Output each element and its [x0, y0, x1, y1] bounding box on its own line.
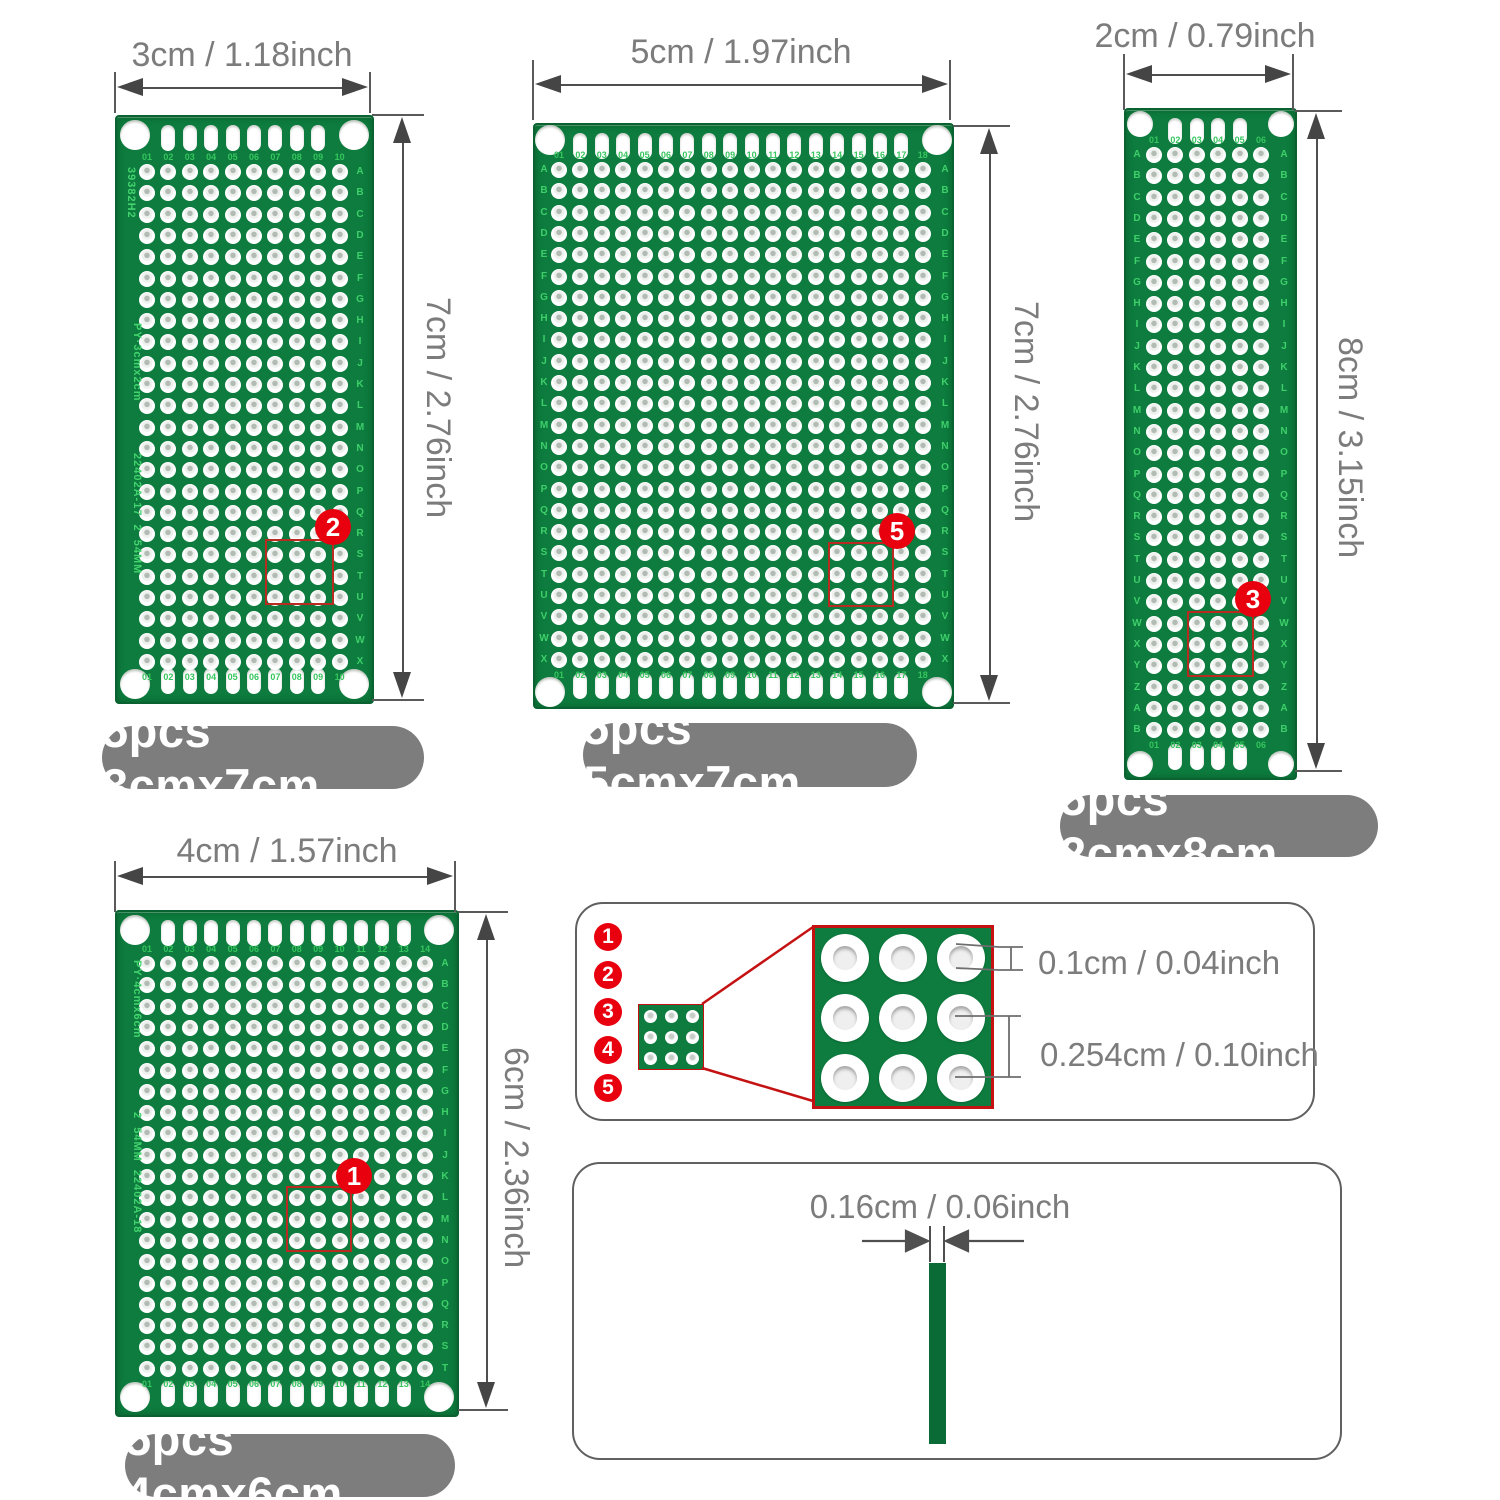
through-hole [182, 249, 198, 265]
through-hole [1189, 360, 1205, 376]
row-letter: D [1130, 213, 1144, 225]
through-hole [893, 269, 909, 285]
through-hole [744, 567, 760, 583]
through-hole [829, 375, 845, 391]
through-hole [182, 1148, 198, 1164]
through-hole [417, 1297, 433, 1313]
through-hole [851, 311, 867, 327]
row-letter: C [938, 207, 952, 219]
through-hole [332, 377, 348, 393]
row-letter: B [1277, 170, 1291, 182]
through-hole [829, 226, 845, 242]
through-hole [310, 398, 326, 414]
dim-arrowhead [477, 914, 495, 940]
through-hole [744, 396, 760, 412]
through-hole [1210, 701, 1226, 717]
through-hole [289, 1148, 305, 1164]
through-hole [572, 588, 588, 604]
row-letter: C [537, 207, 551, 219]
through-hole [417, 1105, 433, 1121]
row-letter: X [938, 654, 952, 666]
through-hole [615, 545, 631, 561]
through-hole [203, 547, 219, 563]
column-number: 03 [1188, 135, 1206, 145]
through-hole [203, 292, 219, 308]
row-letter: X [1130, 639, 1144, 651]
through-hole [267, 313, 283, 329]
through-hole [893, 183, 909, 199]
through-hole [310, 956, 326, 972]
through-hole [786, 482, 802, 498]
column-number: 02 [1166, 135, 1184, 145]
through-hole [225, 526, 241, 542]
through-hole [808, 631, 824, 647]
row-letter: A [1130, 703, 1144, 715]
through-hole [289, 1318, 305, 1334]
through-hole [1189, 168, 1205, 184]
through-hole [1232, 147, 1248, 163]
through-hole [551, 332, 567, 348]
through-hole [786, 609, 802, 625]
through-hole [417, 1084, 433, 1100]
through-hole [893, 631, 909, 647]
through-hole [267, 334, 283, 350]
through-hole [893, 588, 909, 604]
row-letter: V [1277, 596, 1291, 608]
through-hole [246, 484, 262, 500]
through-hole [160, 633, 176, 649]
column-number: 09 [309, 944, 327, 954]
detail-number-1: 1 [594, 923, 622, 951]
row-letter: B [1130, 724, 1144, 736]
through-hole [829, 652, 845, 668]
through-hole [594, 311, 610, 327]
through-hole [289, 185, 305, 201]
through-hole [182, 1254, 198, 1270]
through-hole [765, 247, 781, 263]
red-marker-5: 5 [879, 513, 915, 549]
column-number: 07 [266, 944, 284, 954]
through-hole [665, 1031, 678, 1044]
through-hole [246, 590, 262, 606]
through-hole [246, 334, 262, 350]
through-hole [374, 1148, 390, 1164]
row-letter: G [1130, 277, 1144, 289]
through-hole [289, 999, 305, 1015]
through-hole [225, 1254, 241, 1270]
through-hole [417, 1233, 433, 1249]
through-hole [829, 354, 845, 370]
through-hole [1167, 445, 1183, 461]
through-hole [594, 226, 610, 242]
through-hole [851, 183, 867, 199]
through-hole [1210, 552, 1226, 568]
through-hole [246, 185, 262, 201]
through-hole [1232, 701, 1248, 717]
through-hole [679, 226, 695, 242]
through-hole [594, 269, 610, 285]
edge-slot [375, 920, 389, 946]
through-hole [246, 1063, 262, 1079]
through-hole [786, 290, 802, 306]
through-hole [289, 377, 305, 393]
through-hole [225, 462, 241, 478]
through-hole [1189, 275, 1205, 291]
through-hole [1189, 594, 1205, 610]
dim-arrowhead [980, 675, 998, 701]
through-hole [658, 652, 674, 668]
through-hole [310, 377, 326, 393]
dim-label: 2cm / 0.79inch [1035, 16, 1375, 56]
through-hole [1232, 509, 1248, 525]
through-hole [1167, 616, 1183, 632]
through-hole [765, 588, 781, 604]
row-letter: M [1277, 405, 1291, 417]
silkscreen-text: PY·3cmx2cm [131, 323, 143, 402]
pcb-board-2cmx8cm: 010102020303040405050606AABBCCDDEEFFGGHH… [1124, 108, 1297, 780]
through-hole [353, 1020, 369, 1036]
through-hole [182, 590, 198, 606]
through-hole [1189, 467, 1205, 483]
through-hole [182, 1190, 198, 1206]
through-hole [572, 205, 588, 221]
through-hole [160, 977, 176, 993]
through-hole [572, 503, 588, 519]
through-hole [765, 439, 781, 455]
through-hole [572, 609, 588, 625]
through-hole [374, 1276, 390, 1292]
through-hole [310, 1297, 326, 1313]
through-hole [637, 162, 653, 178]
through-hole [594, 332, 610, 348]
row-letter: A [1277, 149, 1291, 161]
through-hole [1146, 360, 1162, 376]
row-letter: Y [1130, 660, 1144, 672]
through-hole [246, 611, 262, 627]
through-hole [722, 290, 738, 306]
row-letter: S [353, 549, 367, 561]
through-hole [203, 377, 219, 393]
through-hole [182, 1020, 198, 1036]
through-hole [679, 247, 695, 263]
through-hole [658, 503, 674, 519]
through-hole [246, 292, 262, 308]
through-hole [417, 1148, 433, 1164]
through-hole [615, 183, 631, 199]
through-hole [1146, 722, 1162, 738]
edge-slot [183, 125, 197, 151]
through-hole [808, 482, 824, 498]
through-hole [701, 567, 717, 583]
through-hole [1167, 296, 1183, 312]
corner-hole [424, 915, 454, 945]
dim-tick [372, 699, 424, 701]
through-hole [203, 1233, 219, 1249]
through-hole [644, 1052, 657, 1065]
through-hole [851, 524, 867, 540]
through-hole [637, 290, 653, 306]
column-number: 11 [352, 1379, 370, 1389]
through-hole [139, 1084, 155, 1100]
through-hole [353, 1041, 369, 1057]
row-letter: S [1277, 532, 1291, 544]
through-hole [637, 503, 653, 519]
row-letter: C [1277, 192, 1291, 204]
column-number: 09 [309, 1379, 327, 1389]
through-hole [722, 524, 738, 540]
through-hole [594, 609, 610, 625]
through-hole [1146, 339, 1162, 355]
through-hole [353, 1126, 369, 1142]
through-hole [160, 1339, 176, 1355]
through-hole [829, 311, 845, 327]
through-hole [182, 1126, 198, 1142]
through-hole [160, 590, 176, 606]
through-hole [225, 1212, 241, 1228]
through-hole [225, 505, 241, 521]
through-hole [658, 354, 674, 370]
through-hole [658, 226, 674, 242]
through-hole [679, 503, 695, 519]
row-letter: J [353, 358, 367, 370]
through-hole [658, 269, 674, 285]
through-hole [765, 631, 781, 647]
through-hole [594, 375, 610, 391]
row-letter: L [1277, 383, 1291, 395]
through-hole [572, 247, 588, 263]
through-hole [203, 1297, 219, 1313]
through-hole [289, 1361, 305, 1377]
column-number: 08 [288, 152, 306, 162]
dim-line [486, 934, 488, 1388]
through-hole [310, 185, 326, 201]
row-letter: S [438, 1341, 452, 1353]
through-hole [701, 247, 717, 263]
through-hole [267, 633, 283, 649]
through-hole [246, 207, 262, 223]
through-hole [332, 249, 348, 265]
edge-slot [333, 920, 347, 946]
row-letter: E [938, 249, 952, 261]
through-hole [1167, 658, 1183, 674]
through-hole [765, 418, 781, 434]
through-hole [722, 439, 738, 455]
through-hole [1189, 232, 1205, 248]
column-number: 02 [1166, 740, 1184, 750]
through-hole [893, 482, 909, 498]
row-letter: N [438, 1235, 452, 1247]
through-hole [332, 356, 348, 372]
through-hole [572, 652, 588, 668]
through-hole [160, 207, 176, 223]
through-hole [637, 631, 653, 647]
corner-hole [535, 677, 565, 707]
dim-tick [1123, 54, 1125, 110]
through-hole [572, 332, 588, 348]
through-hole [332, 1254, 348, 1270]
through-hole [246, 977, 262, 993]
through-hole [572, 439, 588, 455]
edge-slot [354, 920, 368, 946]
row-letter: H [537, 313, 551, 325]
highlight-square [265, 539, 334, 605]
row-letter: M [353, 422, 367, 434]
through-hole [637, 396, 653, 412]
through-hole [225, 1169, 241, 1185]
through-hole [160, 1063, 176, 1079]
through-hole [1167, 680, 1183, 696]
through-hole [225, 547, 241, 563]
row-letter: Q [438, 1299, 452, 1311]
row-letter: T [353, 571, 367, 583]
through-hole [182, 356, 198, 372]
through-hole [310, 1084, 326, 1100]
column-number: 18 [914, 670, 932, 680]
through-hole [594, 588, 610, 604]
column-number: 12 [785, 150, 803, 160]
through-hole [1210, 381, 1226, 397]
through-hole [722, 375, 738, 391]
through-hole [679, 269, 695, 285]
through-hole [182, 292, 198, 308]
through-hole [679, 418, 695, 434]
through-hole [915, 311, 931, 327]
row-letter: Q [938, 505, 952, 517]
row-letter: Q [1277, 490, 1291, 502]
through-hole [225, 1276, 241, 1292]
through-hole [765, 524, 781, 540]
column-number: 01 [138, 672, 156, 682]
through-hole [160, 999, 176, 1015]
through-hole [353, 1276, 369, 1292]
through-hole [332, 999, 348, 1015]
through-hole [572, 524, 588, 540]
through-hole-zoomed [937, 994, 985, 1042]
through-hole [267, 1148, 283, 1164]
row-letter: G [438, 1086, 452, 1098]
through-hole [1232, 168, 1248, 184]
through-hole [551, 588, 567, 604]
through-hole [374, 1041, 390, 1057]
through-hole [644, 1031, 657, 1044]
through-hole [915, 354, 931, 370]
through-hole [1232, 275, 1248, 291]
through-hole [701, 588, 717, 604]
dim-label: 7cm / 2.76inch [1004, 242, 1048, 582]
through-hole [203, 1339, 219, 1355]
through-hole [396, 1041, 412, 1057]
through-hole [722, 460, 738, 476]
through-hole [1167, 339, 1183, 355]
through-hole [1253, 552, 1269, 568]
row-letter: U [1277, 575, 1291, 587]
column-number: 03 [593, 670, 611, 680]
through-hole [310, 611, 326, 627]
through-hole [915, 247, 931, 263]
column-number: 13 [807, 670, 825, 680]
through-hole [722, 311, 738, 327]
zoomed-pcb-grid [812, 925, 994, 1109]
through-hole [160, 249, 176, 265]
through-hole [551, 609, 567, 625]
through-hole [332, 462, 348, 478]
through-hole [1210, 190, 1226, 206]
row-letter: G [938, 292, 952, 304]
through-hole [1253, 445, 1269, 461]
through-hole [1253, 424, 1269, 440]
through-hole [225, 1041, 241, 1057]
through-hole [658, 631, 674, 647]
through-hole [701, 418, 717, 434]
through-hole-zoomed [879, 1054, 927, 1102]
column-number: 01 [1145, 740, 1163, 750]
through-hole [310, 462, 326, 478]
through-hole [203, 228, 219, 244]
through-hole [182, 1318, 198, 1334]
through-hole [289, 956, 305, 972]
dim-line [137, 87, 348, 89]
through-hole [615, 269, 631, 285]
through-hole [808, 439, 824, 455]
through-hole [765, 545, 781, 561]
through-hole [225, 956, 241, 972]
row-letter: G [353, 294, 367, 306]
through-hole [267, 1126, 283, 1142]
through-hole [289, 1063, 305, 1079]
through-hole [701, 609, 717, 625]
dim-arrowhead [393, 672, 411, 698]
through-hole [594, 247, 610, 263]
through-hole [160, 1276, 176, 1292]
through-hole [765, 482, 781, 498]
row-letter: D [438, 1022, 452, 1034]
through-hole [1146, 275, 1162, 291]
through-hole [1167, 254, 1183, 270]
through-hole [310, 1254, 326, 1270]
through-hole [332, 1041, 348, 1057]
through-hole [765, 183, 781, 199]
row-letter: I [438, 1128, 452, 1140]
silkscreen-text: 39382H2 [125, 167, 137, 219]
through-hole [701, 482, 717, 498]
through-hole [786, 354, 802, 370]
through-hole [744, 545, 760, 561]
through-hole [637, 567, 653, 583]
through-hole [417, 1169, 433, 1185]
through-hole [225, 1339, 241, 1355]
through-hole [1210, 360, 1226, 376]
through-hole [289, 1339, 305, 1355]
through-hole [915, 524, 931, 540]
through-hole [786, 503, 802, 519]
through-hole [808, 183, 824, 199]
through-hole [808, 269, 824, 285]
edge-slot [204, 125, 218, 151]
corner-hole [339, 120, 369, 150]
through-hole [417, 1361, 433, 1377]
through-hole [1146, 168, 1162, 184]
through-hole [851, 652, 867, 668]
row-letter: A [1277, 703, 1291, 715]
through-hole [289, 633, 305, 649]
through-hole [915, 269, 931, 285]
through-hole [701, 162, 717, 178]
edge-slot [247, 125, 261, 151]
through-hole [1232, 722, 1248, 738]
through-hole [551, 247, 567, 263]
dim-tick [114, 72, 116, 113]
row-letter: N [537, 441, 551, 453]
